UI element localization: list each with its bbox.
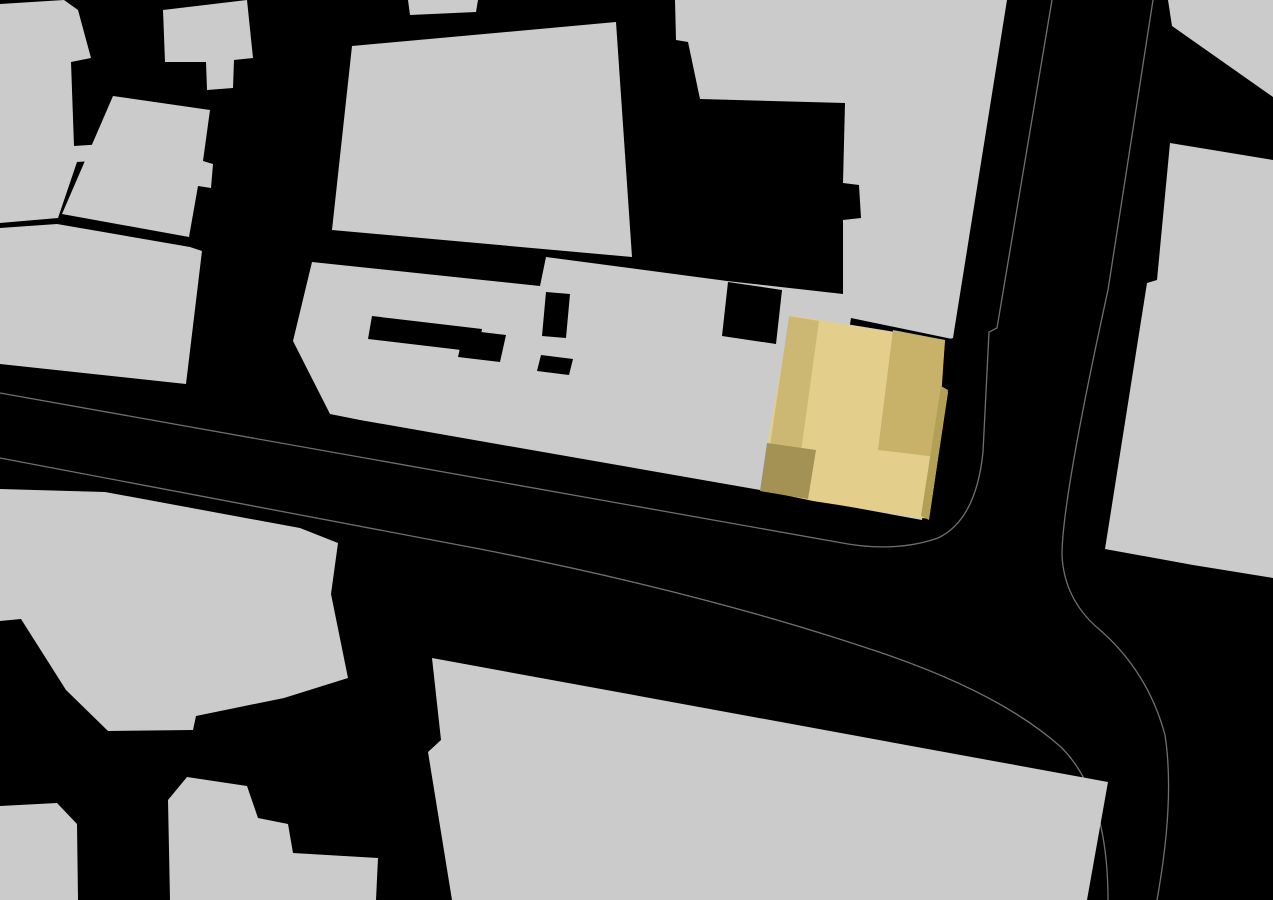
highlighted-building-layer[interactable]: [760, 315, 948, 520]
courtyard-cutout-protrusion: [722, 282, 782, 344]
highlight-roof-southwest-block[interactable]: [760, 443, 816, 499]
building-block-west-lower: [0, 224, 202, 384]
map-canvas[interactable]: [0, 0, 1273, 900]
figure-ground-map[interactable]: [0, 0, 1273, 900]
courtyard-cutout-bar: [542, 292, 570, 338]
building-block-center-north: [332, 22, 632, 257]
courtyard-cutout-hook-column: [458, 330, 506, 362]
building-block-southwest-corner: [0, 803, 78, 900]
